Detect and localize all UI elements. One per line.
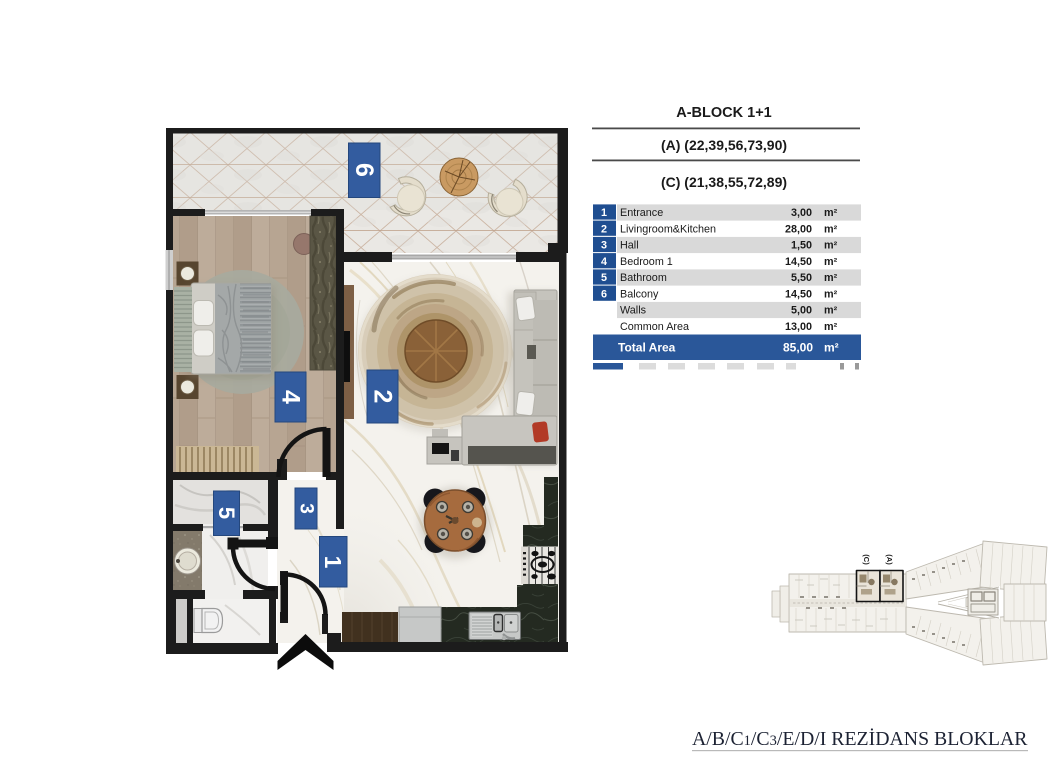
- svg-text:Bathroom: Bathroom: [620, 272, 667, 284]
- svg-text:m²: m²: [824, 223, 838, 235]
- svg-text:6: 6: [350, 163, 378, 177]
- svg-text:6: 6: [601, 288, 607, 300]
- svg-text:(C) (21,38,55,72,89): (C) (21,38,55,72,89): [661, 174, 787, 190]
- svg-text:Walls: Walls: [620, 305, 647, 317]
- svg-text:Bedroom 1: Bedroom 1: [620, 256, 673, 268]
- svg-text:Entrance: Entrance: [620, 207, 663, 219]
- svg-text:Hall: Hall: [620, 240, 639, 252]
- svg-text:14,50: 14,50: [785, 288, 812, 300]
- svg-text:5,50: 5,50: [791, 272, 812, 284]
- svg-text:m²: m²: [824, 207, 838, 219]
- svg-text:2: 2: [601, 223, 607, 235]
- svg-text:28,00: 28,00: [785, 223, 812, 235]
- svg-text:m²: m²: [824, 272, 838, 284]
- svg-text:Livingroom&Kitchen: Livingroom&Kitchen: [620, 223, 716, 235]
- svg-text:m²: m²: [824, 256, 838, 268]
- svg-text:(C): (C): [862, 554, 871, 565]
- svg-text:5: 5: [601, 272, 607, 284]
- svg-text:1,50: 1,50: [791, 240, 812, 252]
- svg-text:3,00: 3,00: [791, 207, 812, 219]
- svg-text:5: 5: [214, 507, 239, 519]
- svg-text:m²: m²: [824, 341, 839, 355]
- svg-text:(A): (A): [885, 554, 894, 565]
- svg-text:5,00: 5,00: [791, 305, 812, 317]
- svg-text:(A) (22,39,56,73,90): (A) (22,39,56,73,90): [661, 137, 787, 153]
- svg-text:m²: m²: [824, 305, 838, 317]
- svg-text:1: 1: [601, 207, 607, 219]
- svg-text:Total Area: Total Area: [618, 341, 676, 355]
- svg-text:1: 1: [320, 556, 346, 569]
- svg-text:m²: m²: [824, 240, 838, 252]
- svg-text:2: 2: [369, 390, 397, 404]
- svg-text:3: 3: [601, 240, 607, 252]
- svg-text:4: 4: [601, 256, 607, 268]
- svg-text:A-BLOCK 1+1: A-BLOCK 1+1: [676, 105, 771, 121]
- svg-text:4: 4: [277, 390, 305, 404]
- svg-text:m²: m²: [824, 321, 838, 333]
- svg-text:A/B/C1/C3/E/D/I REZİDANS BLOK: A/B/C1/C3/E/D/I REZİDANS BLOKLAR: [692, 728, 1028, 750]
- svg-text:m²: m²: [824, 288, 838, 300]
- svg-text:13,00: 13,00: [785, 321, 812, 333]
- svg-text:Common Area: Common Area: [620, 321, 689, 333]
- svg-text:14,50: 14,50: [785, 256, 812, 268]
- svg-text:3: 3: [296, 503, 317, 514]
- svg-text:85,00: 85,00: [783, 341, 813, 355]
- svg-text:Balcony: Balcony: [620, 288, 659, 300]
